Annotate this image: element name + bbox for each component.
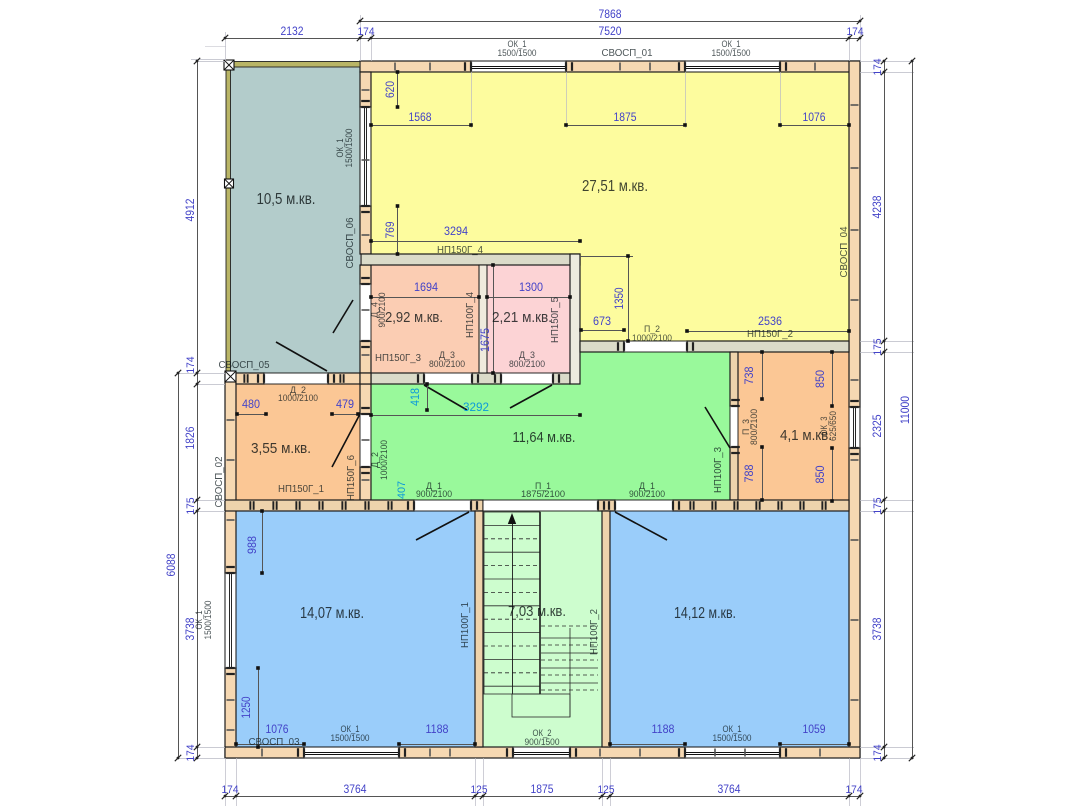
svg-text:1076: 1076 [803,110,826,124]
svg-text:6088: 6088 [164,553,178,576]
svg-text:1500/1500: 1500/1500 [331,733,370,743]
svg-text:11,64 м.кв.: 11,64 м.кв. [513,429,576,446]
svg-text:3,55 м.кв.: 3,55 м.кв. [251,440,311,457]
svg-text:НП150Г_3: НП150Г_3 [375,353,421,364]
svg-text:1500/1500: 1500/1500 [712,48,751,58]
svg-text:174: 174 [185,745,197,762]
svg-text:125: 125 [598,784,615,796]
svg-text:174: 174 [847,26,864,38]
svg-text:14,12 м.кв.: 14,12 м.кв. [674,605,736,622]
svg-text:407: 407 [396,481,408,499]
svg-text:788: 788 [742,464,756,482]
svg-text:НП100Г_1: НП100Г_1 [460,602,471,648]
svg-text:1188: 1188 [652,722,675,736]
svg-text:174: 174 [872,745,884,762]
svg-text:27,51 м.кв.: 27,51 м.кв. [582,178,648,195]
svg-text:174: 174 [846,784,863,796]
svg-text:620: 620 [383,81,397,98]
svg-text:418: 418 [408,388,422,406]
svg-text:4238: 4238 [870,195,884,218]
svg-text:7868: 7868 [599,7,622,21]
svg-text:1568: 1568 [409,110,432,124]
svg-text:1500/1500: 1500/1500 [498,48,537,58]
svg-text:СВОСП_04: СВОСП_04 [839,226,850,277]
svg-text:1875: 1875 [614,110,637,124]
svg-text:900/2100: 900/2100 [377,293,387,328]
svg-text:850: 850 [813,465,827,483]
svg-text:2132: 2132 [281,24,304,38]
svg-text:1000/2100: 1000/2100 [632,333,672,343]
svg-text:1000/2100: 1000/2100 [379,440,389,480]
svg-text:НП100Г_3: НП100Г_3 [713,447,724,493]
svg-text:900/2100: 900/2100 [629,489,665,499]
svg-text:800/2100: 800/2100 [749,409,759,445]
svg-text:НП150Г_4: НП150Г_4 [437,245,483,256]
svg-text:1500/1500: 1500/1500 [203,601,213,640]
svg-text:769: 769 [383,221,397,238]
svg-text:125: 125 [471,784,488,796]
svg-text:1076: 1076 [266,722,289,736]
svg-text:7520: 7520 [599,24,622,38]
svg-text:3738: 3738 [870,617,884,640]
svg-text:1300: 1300 [519,280,543,294]
svg-text:2325: 2325 [870,414,884,437]
svg-text:СВОСП_02: СВОСП_02 [214,456,225,507]
svg-text:3292: 3292 [463,400,489,414]
svg-text:480: 480 [242,397,260,411]
svg-text:174: 174 [872,59,884,76]
svg-text:174: 174 [358,26,375,38]
svg-text:175: 175 [872,339,884,356]
svg-text:НП150Г_2: НП150Г_2 [747,329,793,340]
svg-text:673: 673 [593,314,611,328]
svg-text:1694: 1694 [414,280,438,294]
svg-text:1188: 1188 [426,722,449,736]
svg-text:1875: 1875 [531,782,554,796]
svg-text:1500/1500: 1500/1500 [713,733,752,743]
svg-text:738: 738 [742,366,756,384]
svg-text:4912: 4912 [183,198,197,221]
svg-text:850: 850 [813,370,827,388]
svg-text:НП150Г_5: НП150Г_5 [550,297,561,343]
svg-text:2,92 м.кв.: 2,92 м.кв. [385,309,443,326]
svg-text:СВОСП_06: СВОСП_06 [345,217,356,268]
svg-text:1059: 1059 [803,722,826,736]
svg-text:3764: 3764 [344,782,367,796]
svg-text:625/650: 625/650 [828,411,838,441]
svg-text:10,5 м.кв.: 10,5 м.кв. [257,191,316,208]
svg-text:174: 174 [185,357,197,374]
svg-text:11000: 11000 [898,396,912,424]
svg-text:НП150Г_1: НП150Г_1 [278,484,324,495]
svg-text:СВОСП_05: СВОСП_05 [219,360,270,371]
svg-text:14,07 м.кв.: 14,07 м.кв. [300,605,364,622]
svg-text:СВОСП_01: СВОСП_01 [602,48,653,59]
svg-text:1500/1500: 1500/1500 [344,129,354,168]
svg-text:175: 175 [185,498,197,515]
svg-text:НП100Г_2: НП100Г_2 [589,609,600,655]
svg-text:800/2100: 800/2100 [509,359,545,369]
svg-text:1350: 1350 [612,287,626,309]
svg-text:1826: 1826 [183,426,197,449]
svg-text:2536: 2536 [758,314,782,328]
svg-text:900/1500: 900/1500 [525,737,560,747]
svg-text:174: 174 [222,784,239,796]
svg-text:1000/2100: 1000/2100 [278,393,318,403]
svg-text:900/2100: 900/2100 [416,489,452,499]
svg-text:СВОСП_03: СВОСП_03 [249,737,300,748]
svg-text:НП150Г_6: НП150Г_6 [346,455,357,501]
svg-text:479: 479 [336,397,354,411]
svg-text:3294: 3294 [444,224,468,238]
svg-text:175: 175 [872,498,884,515]
svg-text:988: 988 [245,536,259,554]
svg-text:800/2100: 800/2100 [429,359,465,369]
svg-text:7,03 м.кв.: 7,03 м.кв. [508,603,566,620]
svg-text:1875/2100: 1875/2100 [521,489,565,499]
svg-text:1675: 1675 [478,328,492,352]
svg-text:2,21 м.кв.: 2,21 м.кв. [492,309,552,326]
svg-text:3764: 3764 [718,782,741,796]
svg-text:1250: 1250 [239,696,253,718]
svg-text:НП100Г_4: НП100Г_4 [465,292,476,338]
